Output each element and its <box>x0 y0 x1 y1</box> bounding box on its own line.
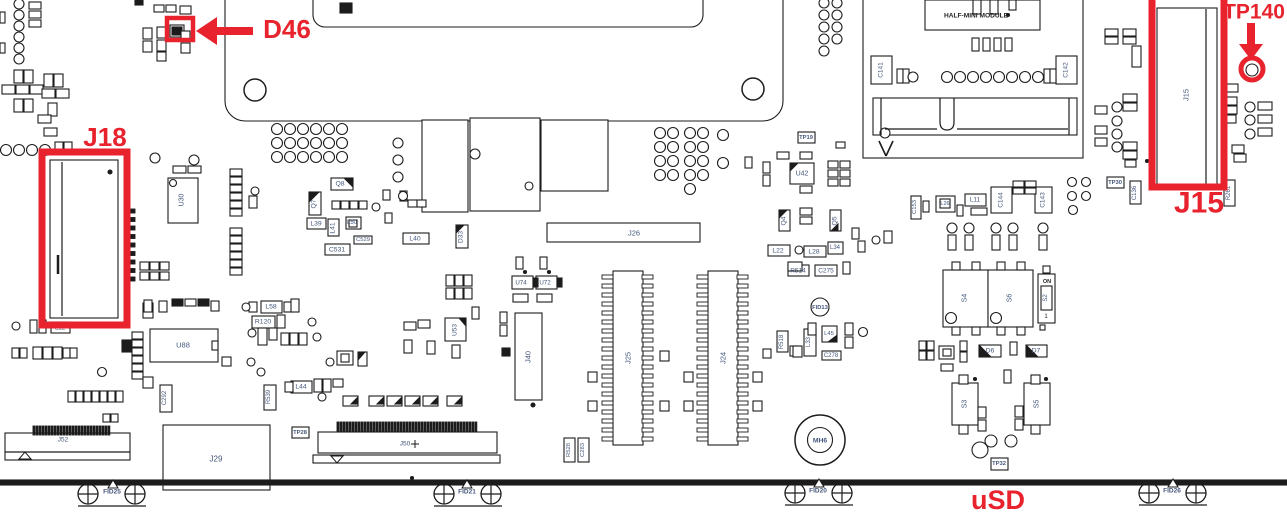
ref-fid13: FID13 <box>812 305 829 311</box>
component-outline <box>948 235 956 250</box>
pad-circle <box>470 149 480 159</box>
component-outline <box>840 170 850 177</box>
pad-circle <box>14 10 24 20</box>
component-outline <box>1025 188 1036 194</box>
connector-pin <box>379 422 381 432</box>
connector-pin <box>602 383 613 387</box>
pad-circle <box>14 43 24 53</box>
component-outline <box>422 120 468 212</box>
connector-pin <box>84 426 86 435</box>
pad-circle <box>393 138 403 148</box>
pad-circle <box>655 128 666 139</box>
pad-circle <box>326 358 334 366</box>
ref-d6: D6 <box>986 348 995 355</box>
component-outline <box>144 300 152 312</box>
connector-pin <box>642 338 653 342</box>
connector-pin <box>697 284 708 288</box>
ref-fid26: FID26 <box>1163 488 1181 495</box>
component-outline <box>230 169 242 176</box>
pad-circle <box>974 378 977 381</box>
connector-pin <box>406 422 408 432</box>
component-outline <box>1005 38 1012 51</box>
component-outline <box>1017 262 1025 270</box>
component-outline <box>16 85 29 94</box>
component-outline <box>44 74 53 87</box>
connector-pin <box>642 275 653 279</box>
connector-pin <box>448 422 450 432</box>
component-outline <box>753 372 762 382</box>
ref-s6: S6 <box>1007 294 1014 303</box>
ref-u53: U53 <box>452 324 459 336</box>
connector-pin <box>442 422 444 432</box>
connector-pin <box>737 419 748 423</box>
component-outline <box>30 320 37 333</box>
component-outline <box>281 333 289 345</box>
connector-pin <box>737 338 748 342</box>
connector-pin <box>469 422 471 432</box>
connector-pin <box>343 422 345 432</box>
connector-pin <box>642 293 653 297</box>
component-outline <box>884 231 892 243</box>
component-outline <box>12 348 19 358</box>
component-outline <box>108 391 115 402</box>
component-outline <box>1232 145 1244 153</box>
pad-circle <box>1045 378 1048 381</box>
pad-circle <box>832 0 842 8</box>
pad-circle <box>1068 178 1077 187</box>
pad-circle <box>908 72 918 82</box>
pad-circle <box>1033 72 1044 83</box>
component-outline <box>959 425 968 434</box>
pad-circle <box>244 79 266 101</box>
component-outline <box>157 40 166 51</box>
connector-pin <box>385 422 387 432</box>
ref-r514: R514 <box>790 268 806 275</box>
component-outline <box>1031 375 1040 384</box>
component-outline <box>992 235 1000 250</box>
pad-circle <box>968 72 979 83</box>
pad-circle <box>819 10 829 20</box>
component-outline <box>230 244 242 251</box>
pad-circle <box>285 124 296 135</box>
component-outline <box>132 364 143 371</box>
component-outline <box>852 228 859 239</box>
connector-pin <box>697 338 708 342</box>
connector-pin <box>400 422 402 432</box>
pad-circle <box>150 153 160 163</box>
pad-circle <box>170 180 177 187</box>
connector-pin <box>642 410 653 414</box>
connector-pin <box>602 437 613 441</box>
connector-pin <box>460 422 462 432</box>
component-outline <box>230 177 242 184</box>
component-outline <box>173 166 186 173</box>
connector-pin <box>697 410 708 414</box>
component-outline <box>230 193 242 200</box>
connector-pin <box>355 422 357 432</box>
component-outline <box>150 262 159 270</box>
component-outline <box>92 391 99 402</box>
component-outline <box>150 272 159 280</box>
pad-circle <box>1008 223 1018 233</box>
component-outline <box>763 175 770 186</box>
pad-circle <box>1245 102 1255 112</box>
component-outline <box>230 260 242 267</box>
component-outline <box>1125 160 1136 167</box>
component-outline <box>1043 266 1050 273</box>
pad-circle <box>14 145 25 156</box>
connector-pin <box>737 428 748 432</box>
ref-fid20: FID20 <box>809 488 827 495</box>
connector-pin <box>412 422 414 432</box>
connector-pin <box>737 275 748 279</box>
component-outline <box>464 275 472 286</box>
pad-circle <box>698 156 709 167</box>
ref-r120: R120 <box>255 319 271 326</box>
ref-c136: C136 <box>1132 185 1138 200</box>
component-outline <box>285 382 293 392</box>
component-outline <box>684 372 693 382</box>
pad-circle <box>685 184 696 195</box>
connector-pin <box>602 293 613 297</box>
component-outline <box>230 268 242 275</box>
ref-c144: C144 <box>998 192 1005 208</box>
connector-pin <box>81 426 83 435</box>
connector-pin <box>352 422 354 432</box>
component-outline <box>132 372 143 379</box>
pad-circle <box>311 152 322 163</box>
connector-pin <box>602 392 613 396</box>
component-outline <box>160 262 169 270</box>
connector-pin <box>340 422 342 432</box>
pad-circle <box>819 34 829 44</box>
ref-fid21: FID21 <box>458 489 476 496</box>
connector-pin <box>388 422 390 432</box>
ref-u74: U74 <box>515 280 527 287</box>
component-outline <box>185 299 196 306</box>
ref-l33: L33 <box>806 336 812 347</box>
ref-c143: C143 <box>1040 192 1047 208</box>
component-outline <box>30 85 43 94</box>
component-outline <box>132 356 143 363</box>
pad-circle <box>832 10 842 20</box>
pad-circle <box>272 152 283 163</box>
ref-j29: J29 <box>210 455 223 464</box>
ref-l58: L58 <box>265 304 277 311</box>
pad-circle <box>698 128 709 139</box>
component-outline <box>588 401 597 411</box>
component-outline <box>455 288 463 299</box>
connector-pin <box>642 374 653 378</box>
component-outline <box>418 320 430 328</box>
connector-pin <box>697 392 708 396</box>
ref-r539: R539 <box>266 389 272 404</box>
pad-circle <box>393 155 403 165</box>
component-outline <box>777 152 789 159</box>
component-outline <box>1009 235 1017 250</box>
component-outline <box>1105 37 1118 44</box>
pad-circle <box>1038 223 1048 233</box>
connector-pin <box>642 356 653 360</box>
component-outline <box>452 345 460 358</box>
component-outline <box>427 341 435 354</box>
connector-pin <box>602 410 613 414</box>
connector-pin <box>90 426 92 435</box>
ref-tp30: TP30 <box>1108 180 1122 186</box>
component-outline <box>836 142 845 148</box>
connector-pin <box>642 347 653 351</box>
component-outline <box>84 391 91 402</box>
component-outline <box>116 391 123 402</box>
pad-circle <box>698 142 709 153</box>
component-outline <box>404 322 416 330</box>
pad-circle <box>1007 72 1018 83</box>
component-outline <box>0 12 5 23</box>
component-outline <box>1123 142 1137 150</box>
pad-circle <box>324 152 335 163</box>
pad-circle <box>655 142 666 153</box>
pad-circle <box>742 78 764 100</box>
component-outline <box>660 401 669 411</box>
component-outline <box>157 27 166 38</box>
component-outline <box>291 299 299 312</box>
pad-circle <box>248 329 256 337</box>
component-outline <box>952 327 960 335</box>
connector-pin <box>602 374 613 378</box>
component-outline <box>350 201 358 209</box>
connector-pin <box>602 275 613 279</box>
ref-u72: U72 <box>539 280 551 287</box>
connector-pin <box>39 426 41 435</box>
component-outline <box>470 118 540 211</box>
component-outline <box>978 420 986 431</box>
component-outline <box>978 407 986 418</box>
ref-on: ON <box>1043 279 1051 285</box>
connector-pin <box>409 422 411 432</box>
connector-pin <box>72 426 74 435</box>
pad-circle <box>1146 160 1149 163</box>
component-outline <box>446 275 454 286</box>
pad-circle <box>1005 435 1017 447</box>
connector-pin <box>96 426 98 435</box>
component-outline <box>1095 138 1107 146</box>
connector-pin <box>737 392 748 396</box>
component-outline <box>332 201 340 209</box>
component-outline <box>957 205 963 216</box>
component-outline <box>923 201 929 212</box>
component-outline <box>42 89 55 98</box>
pad-circle <box>795 246 803 254</box>
component-outline <box>972 38 979 51</box>
connector-pin <box>370 422 372 432</box>
component-outline <box>1025 181 1036 187</box>
component-outline <box>340 3 352 13</box>
pad-circle <box>668 128 679 139</box>
component-outline <box>1031 425 1040 434</box>
component-outline <box>858 241 865 252</box>
component-outline <box>159 301 167 312</box>
connector-pin <box>102 426 104 435</box>
connector-pin <box>697 437 708 441</box>
ref-s4: S4 <box>962 294 969 303</box>
pad-circle <box>108 170 112 174</box>
ref-c529: C529 <box>356 237 370 243</box>
connector-pin <box>697 383 708 387</box>
connector-pin <box>642 428 653 432</box>
component-outline <box>1010 342 1017 355</box>
ref-q5: Q5 <box>832 216 839 225</box>
ref-j40: J40 <box>524 351 533 363</box>
component-outline <box>1050 69 1056 83</box>
connector-pin <box>697 365 708 369</box>
pad-circle <box>718 130 729 141</box>
component-outline <box>290 333 298 345</box>
component-outline <box>1044 69 1050 83</box>
pad-circle <box>685 128 696 139</box>
component-outline <box>323 379 331 392</box>
component-outline <box>230 236 242 243</box>
component-outline <box>14 70 23 83</box>
ref-l22: L22 <box>772 248 784 255</box>
component-outline <box>941 364 953 371</box>
component-outline <box>745 157 752 168</box>
ref-j24: J24 <box>719 352 728 364</box>
pad-circle <box>994 72 1005 83</box>
pad-circle <box>411 477 414 480</box>
connector-pin <box>697 419 708 423</box>
ref-j25: J25 <box>624 352 633 364</box>
connector-pin <box>54 426 56 435</box>
connector-pin <box>697 302 708 306</box>
connector-pin <box>642 302 653 306</box>
pad-circle <box>242 303 250 311</box>
annotation-label-d46: D46 <box>263 14 311 44</box>
pad-circle <box>1112 116 1122 126</box>
component-outline <box>212 341 218 350</box>
ref-half-mini-module: HALF-MINI MODULE <box>944 13 1009 20</box>
component-outline <box>1234 154 1246 162</box>
component-outline <box>994 38 1001 51</box>
ref-r528: R528 <box>566 443 572 457</box>
connector-pin <box>737 365 748 369</box>
connector-pin <box>737 320 748 324</box>
pad-circle <box>946 313 957 324</box>
ref-tp32: TP32 <box>992 461 1006 467</box>
connector-pin <box>436 422 438 432</box>
pad-circle <box>819 0 829 8</box>
connector-pin <box>642 437 653 441</box>
connector-pin <box>391 422 393 432</box>
connector-pin <box>642 284 653 288</box>
component-outline <box>258 328 267 345</box>
connector-pin <box>445 422 447 432</box>
ref-c292: C292 <box>162 390 168 405</box>
connector-pin <box>415 422 417 432</box>
connector-pin <box>737 401 748 405</box>
connector-pin <box>99 426 101 435</box>
connector-pin <box>642 419 653 423</box>
pad-circle <box>531 403 535 407</box>
component-outline <box>181 43 190 53</box>
connector-pin <box>51 426 53 435</box>
component-outline <box>919 351 926 360</box>
component-outline <box>997 262 1005 270</box>
component-outline <box>1004 370 1011 383</box>
component-outline <box>952 262 960 270</box>
connector-pin <box>93 426 95 435</box>
pad-circle <box>1245 115 1255 125</box>
component-outline <box>143 41 152 52</box>
connector-pin <box>642 401 653 405</box>
component-outline <box>63 348 70 358</box>
connector-pin <box>475 422 477 432</box>
component-outline <box>385 213 392 223</box>
pad-circle <box>832 22 842 32</box>
component-outline <box>763 162 770 173</box>
pad-circle <box>311 138 322 149</box>
connector-pin <box>602 338 613 342</box>
connector-pin <box>439 422 441 432</box>
pad-circle <box>308 318 316 326</box>
pad-circle <box>27 145 38 156</box>
ref-s2: S2 <box>1043 294 1049 302</box>
component-outline <box>359 201 367 209</box>
pad-circle <box>1112 129 1122 139</box>
connector-pin <box>421 422 423 432</box>
pad-circle <box>685 170 696 181</box>
connector-pin <box>36 426 38 435</box>
component-outline <box>446 288 454 299</box>
component-outline <box>230 228 242 235</box>
ref-l34: L34 <box>830 245 841 251</box>
ref-l45: L45 <box>824 331 834 337</box>
connector-pin <box>424 422 426 432</box>
pad-circle <box>324 138 335 149</box>
pad-circle <box>524 271 527 274</box>
pad-circle <box>12 322 20 330</box>
component-outline <box>417 200 426 207</box>
connector-pin <box>361 422 363 432</box>
connector-pin <box>737 302 748 306</box>
component-outline <box>14 99 23 112</box>
connector-pin <box>602 320 613 324</box>
ref-q8: Q8 <box>335 181 344 188</box>
component-outline <box>845 323 853 335</box>
component-outline <box>960 341 967 351</box>
pad-circle <box>1082 178 1091 187</box>
ref-l44: L44 <box>295 384 307 391</box>
component-outline <box>1123 29 1136 36</box>
pad-circle <box>819 22 829 32</box>
component-outline <box>547 223 700 242</box>
component-outline <box>230 209 242 216</box>
component-outline <box>154 5 164 12</box>
ref-q7: Q7 <box>311 199 318 208</box>
connector-pin <box>642 383 653 387</box>
pad-circle <box>655 156 666 167</box>
ref-u30: U30 <box>179 193 186 206</box>
annotation-label-tp140: TP140 <box>1223 1 1285 24</box>
component-outline <box>100 391 107 402</box>
pad-circle <box>298 152 309 163</box>
connector-pin <box>642 311 653 315</box>
component-outline <box>38 115 51 123</box>
component-outline <box>516 257 523 269</box>
connector-pin <box>463 422 465 432</box>
ref-d33: D33 <box>458 231 465 243</box>
component-outline <box>959 375 968 384</box>
connector-pin <box>642 329 653 333</box>
